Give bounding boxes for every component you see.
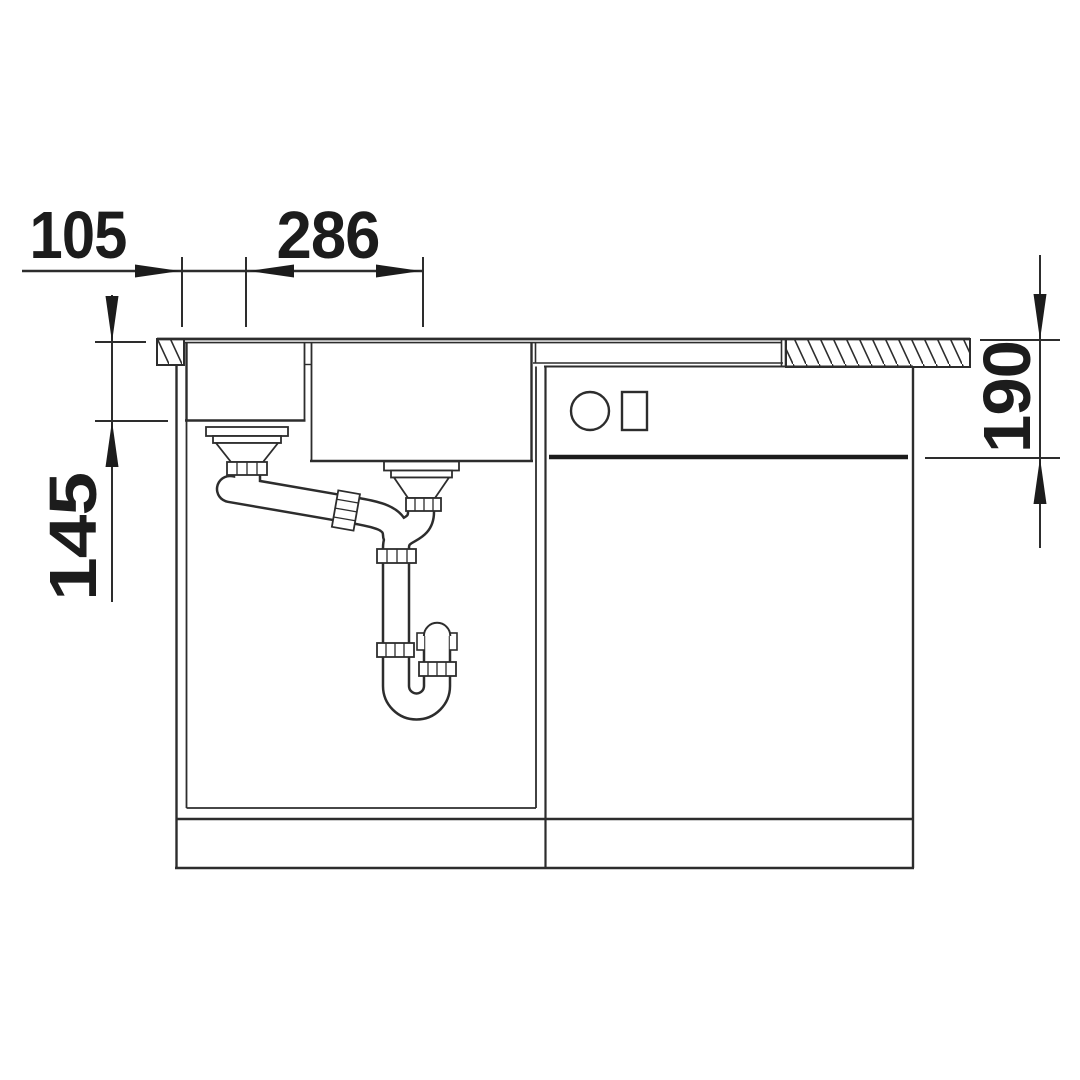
large-drain-flange-band2 <box>391 471 452 478</box>
large-drain-flange <box>384 462 459 512</box>
appliance-display-rect <box>622 392 647 430</box>
arrow-190-up <box>1034 458 1047 504</box>
right-dimension-group: 190 <box>925 255 1060 548</box>
dimension-label-145: 145 <box>36 473 111 601</box>
arrow-286-right <box>376 265 421 278</box>
cabinet-group <box>175 365 914 868</box>
countertop-group <box>157 339 970 367</box>
appliance-group <box>544 367 913 458</box>
left-dimension-group: 145 <box>36 295 168 602</box>
technical-drawing-page: 105 286 145 190 <box>0 0 1080 1080</box>
countertop-hatch-left <box>157 339 184 365</box>
arrow-145-down <box>106 296 119 342</box>
small-drain-funnel <box>216 443 278 462</box>
dimension-label-105: 105 <box>30 198 127 273</box>
large-drain-funnel <box>394 478 449 499</box>
small-drain-flange-band1 <box>206 427 288 436</box>
top-dimension-group: 105 286 <box>22 198 423 327</box>
arrow-145-up <box>106 421 119 467</box>
appliance-knob-circle <box>571 392 609 430</box>
large-drain-flange-band1 <box>384 462 459 471</box>
sink-section-drawing: 105 286 145 190 <box>0 0 1080 1080</box>
small-drain-flange <box>206 427 288 475</box>
arrow-105 <box>135 265 180 278</box>
dimension-label-286: 286 <box>277 198 380 273</box>
countertop-hatch-right <box>786 339 970 367</box>
plumbing-group <box>206 427 459 707</box>
small-drain-flange-band2 <box>213 436 281 443</box>
dimension-label-190: 190 <box>970 341 1045 453</box>
trap-outlet-dome <box>424 623 450 636</box>
arrow-190-down <box>1034 294 1047 340</box>
